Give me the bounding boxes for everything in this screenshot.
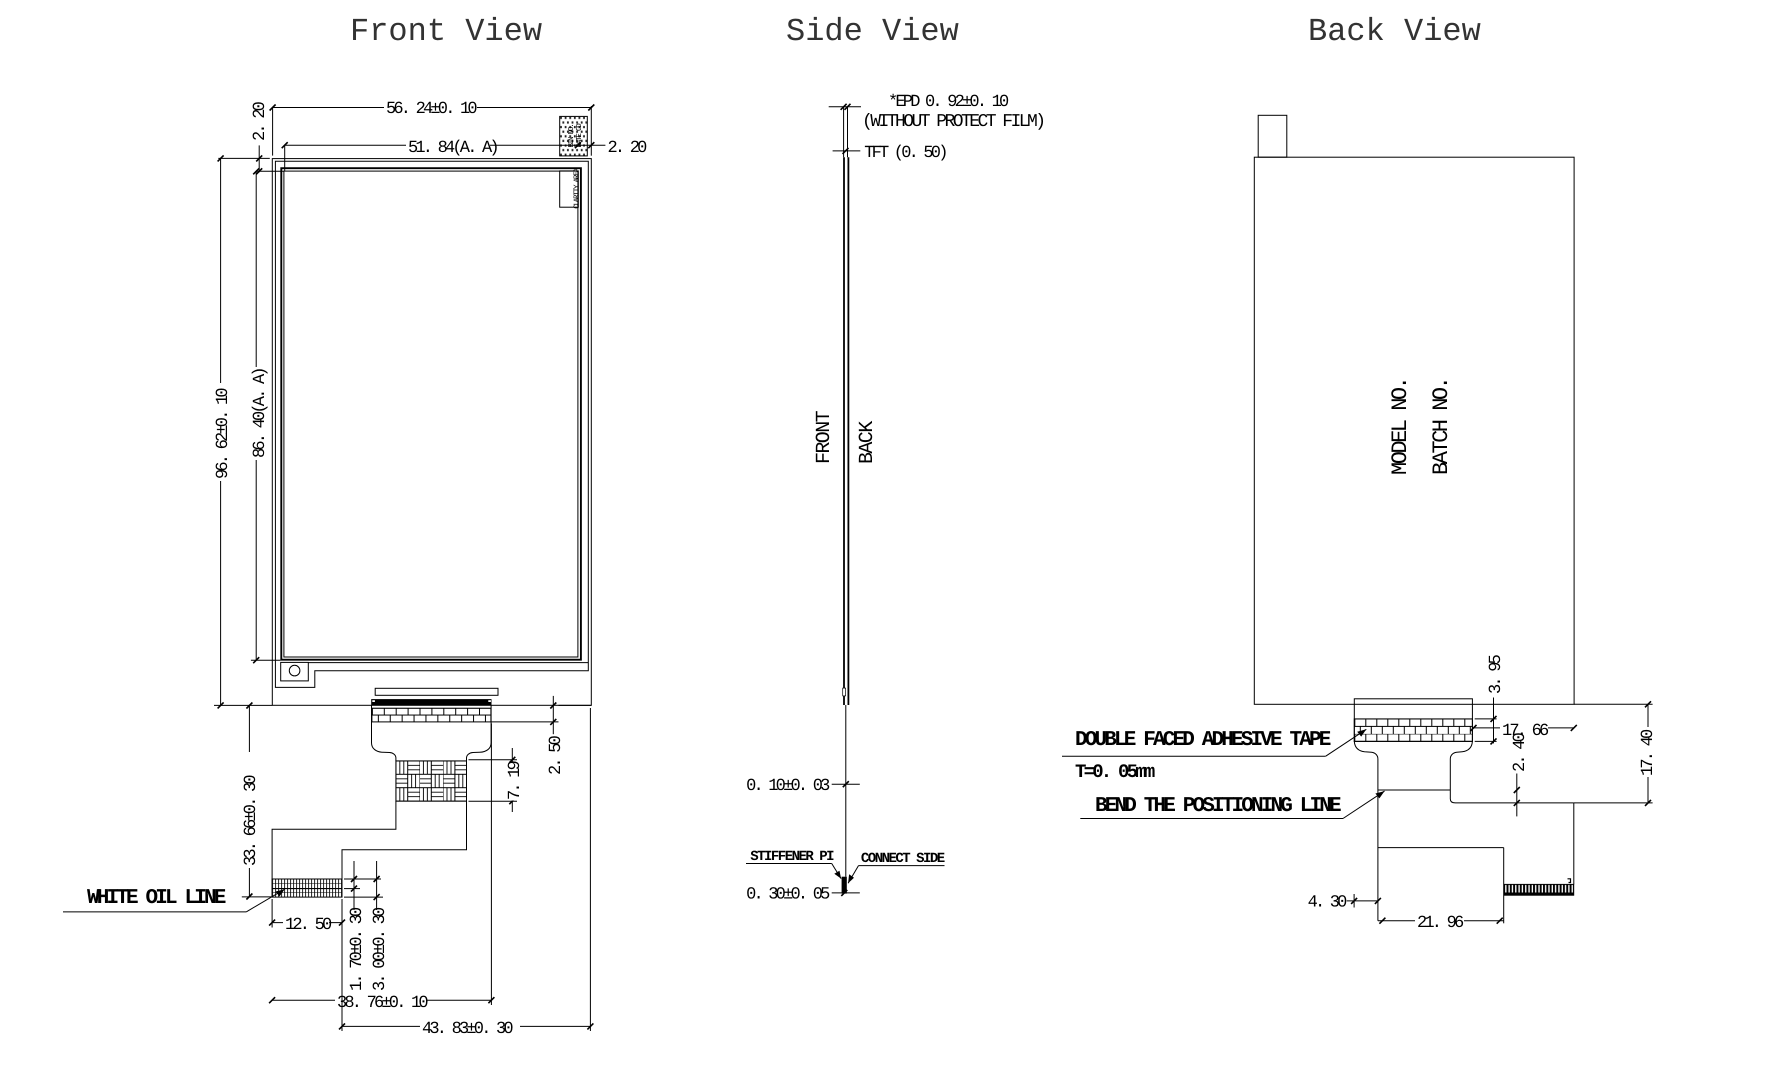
svg-text:17. 40: 17. 40: [1639, 729, 1658, 776]
svg-text:(WITHOUT PROTECT FILM): (WITHOUT PROTECT FILM): [862, 112, 1044, 132]
svg-text:3. 95: 3. 95: [1487, 654, 1506, 694]
svg-text:T=0. 05mm: T=0. 05mm: [1075, 761, 1155, 783]
svg-text:2. 20: 2. 20: [251, 101, 270, 141]
svg-text:WHITE OIL LINE: WHITE OIL LINE: [87, 887, 226, 910]
svg-text:4. 30: 4. 30: [1308, 894, 1348, 913]
svg-text:FRONT: FRONT: [813, 410, 836, 464]
svg-text:12. 50: 12. 50: [285, 916, 332, 935]
svg-text:MODEL NO.: MODEL NO.: [1388, 379, 1413, 475]
svg-text:CLARITY AREA: CLARITY AREA: [573, 167, 582, 208]
svg-text:STIFFENER PI: STIFFENER PI: [750, 849, 834, 865]
svg-text:2. 40: 2. 40: [1511, 732, 1530, 772]
svg-text:TFT (0. 50): TFT (0. 50): [864, 144, 946, 163]
svg-text:3. 00±0. 30: 3. 00±0. 30: [371, 907, 390, 991]
svg-text:BACK: BACK: [856, 421, 879, 464]
svg-text:21. 96: 21. 96: [1417, 914, 1464, 933]
svg-text:0. 30±0. 05: 0. 30±0. 05: [746, 886, 830, 905]
svg-text:CONNECT SIDE: CONNECT SIDE: [861, 851, 945, 867]
svg-text:43. 83±0. 30: 43. 83±0. 30: [422, 1020, 513, 1039]
svg-text:Front View: Front View: [350, 13, 542, 50]
svg-text:0. 10±0. 03: 0. 10±0. 03: [746, 777, 830, 796]
svg-text:2. 50: 2. 50: [547, 735, 566, 775]
svg-text:Back View: Back View: [1308, 13, 1481, 50]
svg-text:7. 19: 7. 19: [506, 760, 525, 800]
svg-text:*EPD 0. 92±0. 10: *EPD 0. 92±0. 10: [888, 93, 1009, 112]
svg-text:1. 70±0. 30: 1. 70±0. 30: [348, 907, 367, 991]
svg-text:2. 20: 2. 20: [608, 139, 648, 158]
svg-text:Side View: Side View: [786, 13, 959, 50]
svg-text:BATCH NO.: BATCH NO.: [1429, 379, 1454, 475]
svg-text:38. 76±0. 10: 38. 76±0. 10: [337, 994, 428, 1013]
svg-text:33. 66±0. 30: 33. 66±0. 30: [242, 775, 261, 866]
svg-text:86. 40(A. A): 86. 40(A. A): [251, 369, 270, 458]
svg-text:56. 24±0. 10: 56. 24±0. 10: [386, 100, 477, 119]
svg-text:DOUBLE FACED ADHESIVE TAPE: DOUBLE FACED ADHESIVE TAPE: [1075, 729, 1331, 752]
svg-text:BEND THE POSITIONING LINE: BEND THE POSITIONING LINE: [1095, 795, 1341, 818]
svg-text:BIN NO.: BIN NO.: [567, 124, 576, 147]
svg-text:51. 84(A. A): 51. 84(A. A): [408, 139, 497, 158]
svg-text:96. 62±0. 10: 96. 62±0. 10: [214, 388, 233, 479]
